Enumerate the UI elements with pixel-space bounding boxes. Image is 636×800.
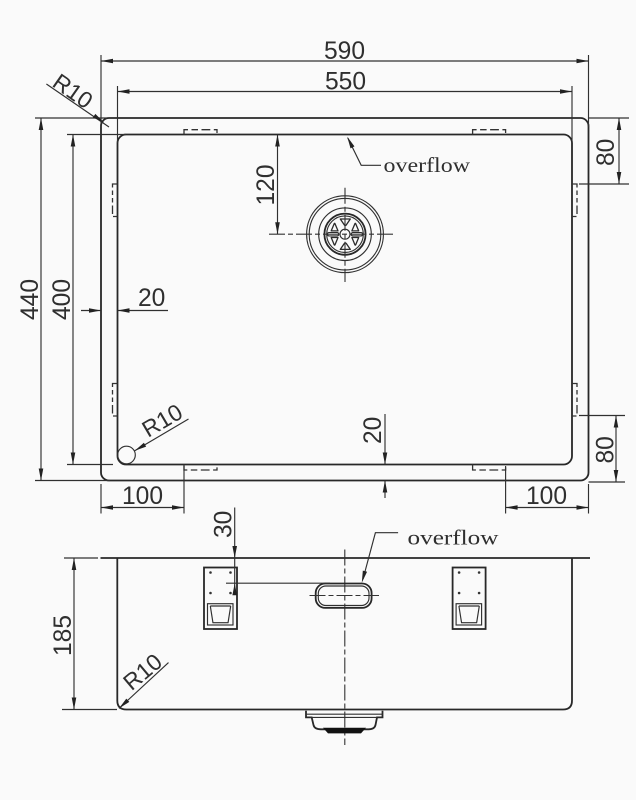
svg-text:440: 440 xyxy=(17,279,44,320)
svg-text:400: 400 xyxy=(49,279,76,320)
svg-text:80: 80 xyxy=(593,139,620,166)
svg-text:overflow: overflow xyxy=(384,153,471,177)
svg-text:100: 100 xyxy=(526,483,567,510)
svg-text:30: 30 xyxy=(211,511,238,538)
svg-text:550: 550 xyxy=(325,69,366,96)
svg-text:20: 20 xyxy=(360,417,387,444)
svg-text:590: 590 xyxy=(324,38,365,65)
svg-text:overflow: overflow xyxy=(408,526,500,550)
svg-text:20: 20 xyxy=(138,285,165,312)
svg-text:100: 100 xyxy=(122,483,163,510)
svg-text:185: 185 xyxy=(50,615,77,656)
svg-text:80: 80 xyxy=(593,436,620,463)
svg-text:120: 120 xyxy=(253,164,280,205)
